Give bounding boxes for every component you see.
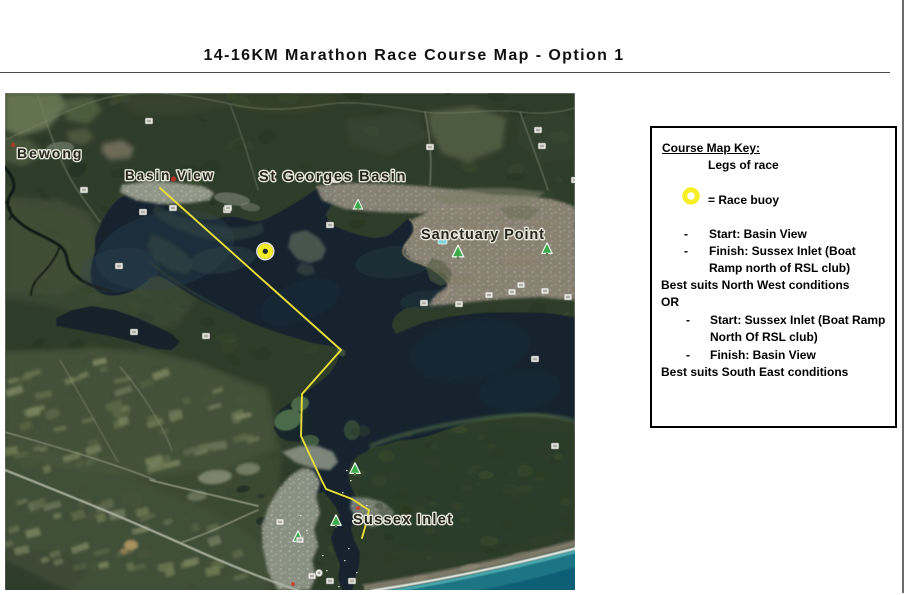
svg-text:Sussex Inlet: Sussex Inlet <box>353 512 453 528</box>
svg-text:Basin View: Basin View <box>125 168 215 183</box>
svg-text:Sanctuary Point: Sanctuary Point <box>421 227 545 243</box>
svg-text:St Georges Basin: St Georges Basin <box>259 169 407 185</box>
svg-text:Bewong: Bewong <box>17 145 83 161</box>
